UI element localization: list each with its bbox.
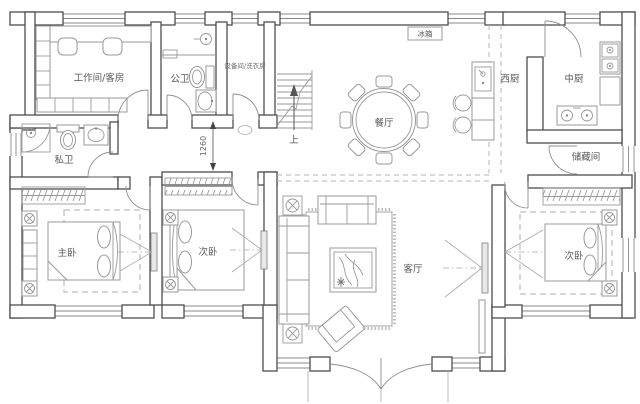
public-bath-fixtures bbox=[162, 34, 216, 113]
door-equipment bbox=[233, 94, 259, 120]
shelf-unit bbox=[36, 26, 50, 100]
window-top-chinese-kitchen bbox=[565, 14, 600, 23]
walls bbox=[9, 12, 636, 371]
tv-panel bbox=[482, 243, 488, 293]
kitchen-island bbox=[472, 62, 494, 140]
window-master-south bbox=[55, 306, 122, 316]
label-dining-room: 餐厅 bbox=[374, 117, 394, 129]
pillow bbox=[584, 255, 596, 275]
dining-chair bbox=[417, 112, 428, 128]
tv-sight-lines bbox=[505, 230, 545, 278]
entry-double-door bbox=[330, 358, 432, 389]
window-bedroom2-south bbox=[184, 306, 243, 316]
window-bedroom3-east bbox=[621, 238, 636, 272]
plant-icon bbox=[283, 324, 302, 343]
door-chinese-kitchen bbox=[545, 21, 581, 57]
master-bedroom-furniture bbox=[22, 210, 157, 296]
dining-chair bbox=[340, 112, 351, 128]
nightstand-lamp bbox=[602, 281, 617, 296]
window-top-equipment bbox=[232, 14, 258, 23]
pillow bbox=[98, 255, 111, 277]
porch-steps bbox=[308, 371, 448, 402]
floor-plan: 1260 bbox=[0, 0, 640, 404]
window-top-workroom bbox=[63, 14, 125, 23]
door-bedroom2 bbox=[232, 179, 258, 205]
window-private-bath-west bbox=[9, 133, 23, 156]
nightstand-lamp bbox=[22, 211, 37, 226]
nightstand-lamp bbox=[163, 210, 178, 225]
window-top-stairhall bbox=[280, 14, 310, 23]
wardrobe-master bbox=[22, 187, 85, 204]
pillow bbox=[179, 251, 192, 273]
tv-console bbox=[479, 300, 485, 353]
door-public-bath bbox=[167, 95, 192, 120]
cabinet-row bbox=[37, 98, 127, 112]
corridor-oval bbox=[238, 126, 252, 135]
wardrobe-bedroom3 bbox=[543, 188, 620, 205]
pillow bbox=[584, 228, 596, 248]
label-bedroom3: 次卧 bbox=[564, 250, 584, 262]
window-top-public-bath bbox=[175, 14, 205, 23]
bar-stools bbox=[453, 95, 471, 133]
label-bedroom2: 次卧 bbox=[198, 246, 218, 258]
desk bbox=[37, 26, 151, 42]
window-living-south-left bbox=[277, 358, 310, 368]
sofa-main bbox=[279, 216, 309, 324]
label-living-room: 客厅 bbox=[403, 263, 423, 275]
window-storage-east bbox=[621, 146, 636, 172]
coffee-table bbox=[330, 248, 376, 292]
plant-icon bbox=[283, 196, 302, 215]
label-equipment-laundry: 设备间/洗衣房 bbox=[224, 61, 265, 70]
nightstand-lamp bbox=[22, 281, 37, 296]
tv-sight-lines bbox=[443, 240, 482, 297]
pillow bbox=[98, 226, 111, 248]
wardrobe-bedroom2 bbox=[165, 178, 232, 195]
label-public-bath: 公卫 bbox=[170, 74, 190, 85]
room-labels: 工作间/客房 公卫 设备间/洗衣房 冰箱 餐厅 西厨 中厨 储藏间 私卫 主卧 … bbox=[54, 29, 600, 276]
desk-chair bbox=[58, 38, 77, 55]
bath-shelf bbox=[163, 50, 177, 58]
nightstand-lamp bbox=[163, 277, 178, 292]
pillow bbox=[179, 221, 192, 243]
window-bedroom3-south bbox=[522, 306, 590, 316]
door-private-bath bbox=[88, 152, 113, 177]
label-workroom: 工作间/客房 bbox=[74, 72, 125, 84]
door-bedroom3 bbox=[505, 182, 528, 208]
label-chinese-kitchen: 中厨 bbox=[564, 73, 584, 85]
stove-icon bbox=[557, 106, 597, 125]
tv-sight-lines bbox=[118, 234, 152, 271]
label-storage: 储藏间 bbox=[572, 151, 601, 163]
nightstand-lamp bbox=[602, 210, 617, 225]
dimension-text: 1260 bbox=[199, 136, 208, 156]
living-room-furniture bbox=[279, 196, 488, 353]
double-sink-icon bbox=[600, 42, 620, 74]
toilet-icon bbox=[57, 125, 79, 150]
dining-chair bbox=[376, 153, 392, 164]
floor-plan-canvas: 1260 bbox=[0, 0, 640, 404]
dresser bbox=[23, 230, 37, 282]
window-living-south-right bbox=[452, 358, 480, 368]
loveseat bbox=[318, 196, 376, 224]
sink-icon bbox=[84, 125, 108, 145]
counter bbox=[600, 77, 620, 105]
window-top-kitchen-entry bbox=[448, 14, 485, 23]
desk-chair bbox=[103, 38, 122, 55]
label-master-bedroom: 主卧 bbox=[57, 247, 77, 259]
label-west-kitchen: 西厨 bbox=[500, 74, 520, 85]
label-fridge: 冰箱 bbox=[418, 29, 433, 39]
label-private-bath: 私卫 bbox=[54, 155, 74, 166]
sink-icon bbox=[196, 90, 216, 112]
toilet-icon bbox=[190, 66, 215, 88]
water-heater-icon bbox=[194, 34, 212, 45]
dining-chair bbox=[376, 76, 392, 87]
bedroom3-furniture bbox=[505, 210, 617, 296]
armchair bbox=[317, 305, 365, 352]
label-stairs-up: 上 bbox=[289, 135, 299, 146]
workroom-furniture bbox=[36, 26, 151, 112]
